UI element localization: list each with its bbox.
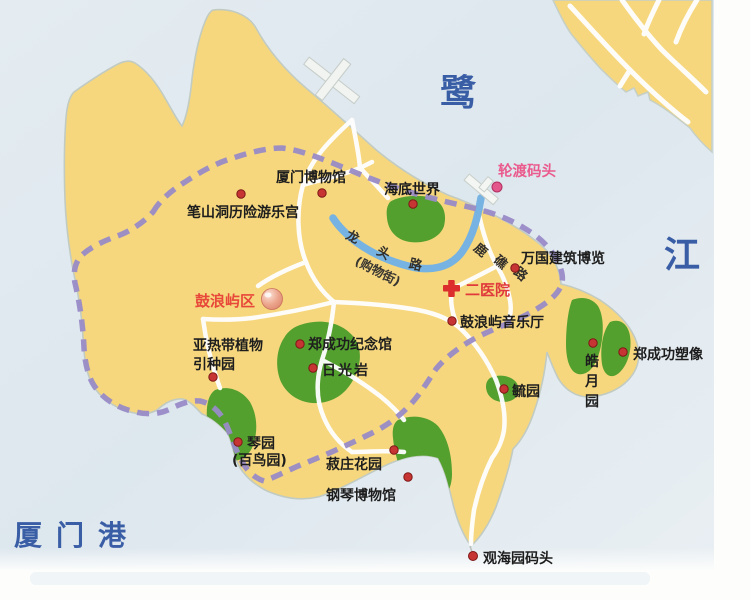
marker-concert-hall[interactable] bbox=[448, 317, 456, 325]
marker-haoyue-garden[interactable] bbox=[589, 339, 597, 347]
marker-guanhaiyuan-wharf[interactable] bbox=[469, 552, 478, 561]
marker-sunlight-rock[interactable] bbox=[309, 364, 317, 372]
marker-wanguo-architecture[interactable] bbox=[511, 264, 519, 272]
label-shuzhuang-garden: 菽庄花园 bbox=[326, 456, 382, 473]
marker-zheng-statue[interactable] bbox=[619, 348, 627, 356]
label-xiamen-museum: 厦门博物馆 bbox=[276, 169, 346, 186]
label-sea-lu: 鹭 bbox=[440, 72, 477, 114]
marker-piano-museum[interactable] bbox=[404, 473, 412, 481]
marker-xiamen-museum[interactable] bbox=[318, 189, 326, 197]
label-haoyue-garden: 皓 月 园 bbox=[584, 353, 599, 410]
label-piano-museum: 钢琴博物馆 bbox=[326, 487, 396, 504]
marker-ferry-terminal[interactable] bbox=[492, 182, 502, 192]
label-underwater-world: 海底世界 bbox=[384, 181, 441, 198]
marker-bishandong-palace[interactable] bbox=[237, 190, 245, 198]
label-subtropical-garden-line1: 亚热带植物 bbox=[193, 337, 263, 354]
map-canvas: 龙 头 路 (购物街) 鹿 礁 路 bbox=[0, 0, 750, 600]
label-haoyue-char1: 皓 bbox=[585, 353, 599, 370]
label-xiamen-harbor: 厦门港 bbox=[14, 519, 140, 552]
label-yuyuan-garden: 毓园 bbox=[512, 383, 540, 400]
marker-underwater-world[interactable] bbox=[409, 200, 417, 208]
label-sunlight-rock: 日光岩 bbox=[322, 362, 370, 379]
label-qinyuan-line2: (百鸟园) bbox=[232, 452, 287, 469]
label-zheng-statue: 郑成功塑像 bbox=[633, 346, 704, 363]
label-concert-hall: 鼓浪屿音乐厅 bbox=[460, 314, 544, 331]
label-bishandong-palace: 笔山洞历险游乐宫 bbox=[187, 204, 299, 221]
marker-zheng-memorial[interactable] bbox=[296, 340, 304, 348]
marker-gulangyu-district-ball[interactable] bbox=[262, 289, 283, 310]
label-qinyuan-line1: 琴园 bbox=[247, 436, 275, 452]
label-haoyue-char2: 月 bbox=[584, 374, 599, 390]
label-second-hospital: 二医院 bbox=[465, 281, 510, 299]
label-sea-jiang: 江 bbox=[664, 234, 700, 276]
map-page: 龙 头 路 (购物街) 鹿 礁 路 bbox=[0, 0, 750, 600]
label-zheng-memorial: 郑成功纪念馆 bbox=[308, 336, 392, 353]
label-ferry-terminal: 轮渡码头 bbox=[498, 162, 556, 180]
label-wanguo-architecture: 万国建筑博览 bbox=[520, 250, 605, 267]
label-gulangyu-district: 鼓浪屿区 bbox=[195, 292, 255, 310]
label-haoyue-char3: 园 bbox=[585, 394, 599, 410]
marker-shuzhuang-garden[interactable] bbox=[390, 446, 398, 454]
marker-subtropical-garden[interactable] bbox=[209, 373, 217, 381]
marker-yuyuan-garden[interactable] bbox=[500, 385, 508, 393]
label-guanhaiyuan-wharf: 观海园码头 bbox=[483, 550, 553, 567]
scan-artifact bbox=[30, 572, 650, 585]
marker-qinyuan-garden[interactable] bbox=[234, 438, 242, 446]
label-subtropical-garden-line2: 引种园 bbox=[193, 356, 235, 373]
